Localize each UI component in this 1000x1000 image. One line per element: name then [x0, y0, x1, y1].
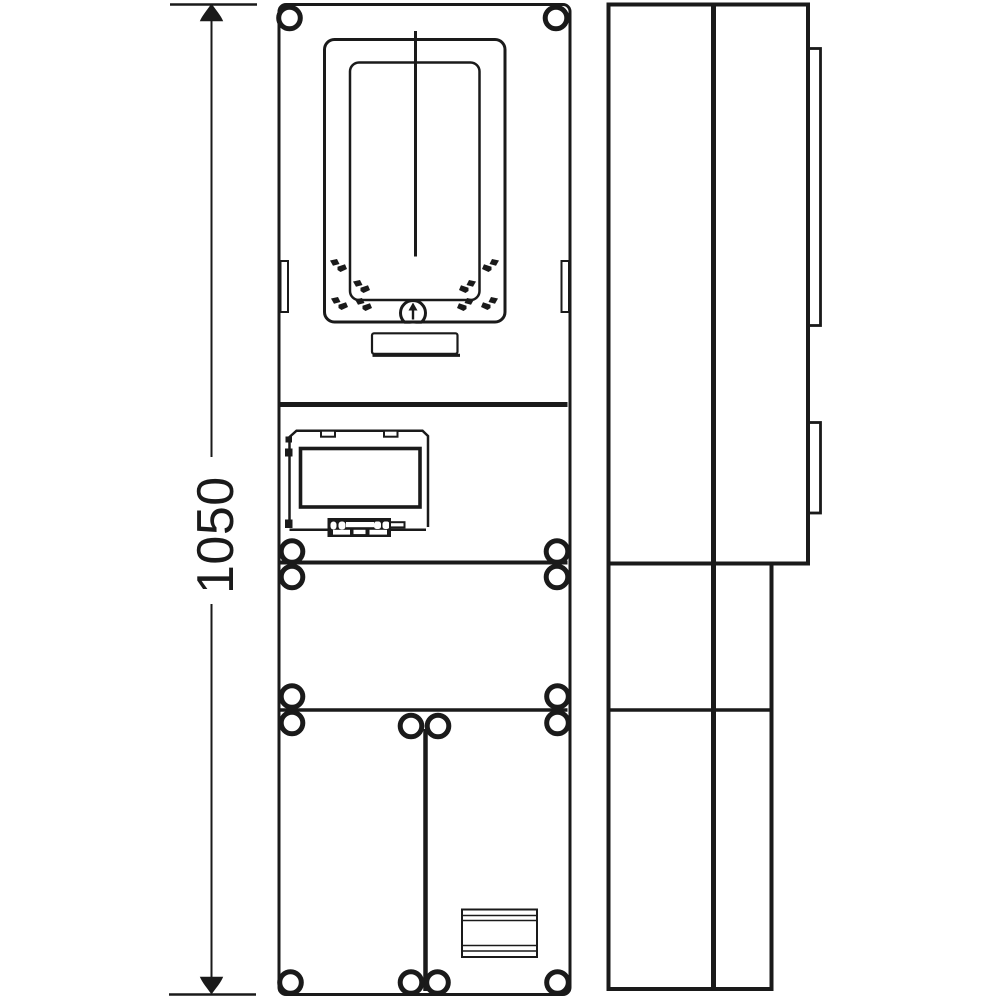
svg-text:1050: 1050	[187, 476, 245, 594]
